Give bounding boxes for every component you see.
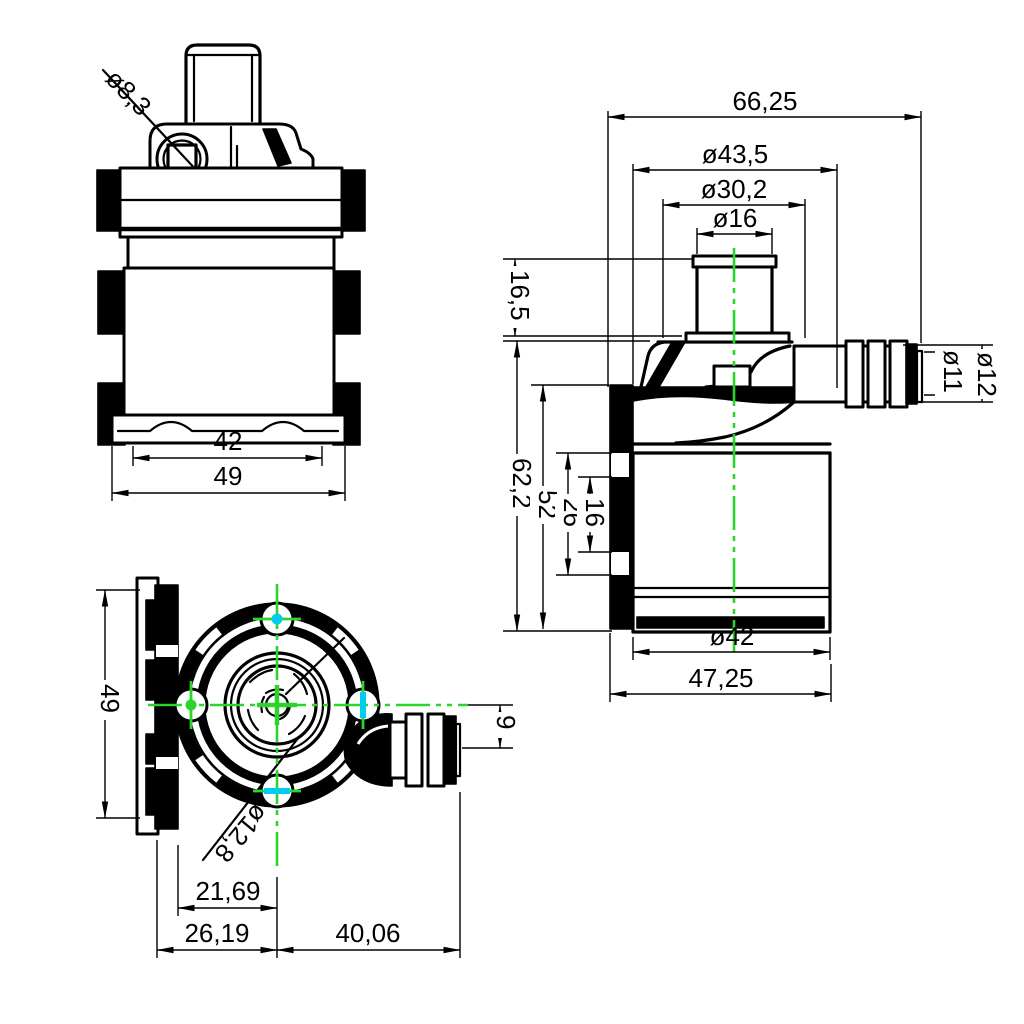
- top-boss-n-accent: [272, 614, 283, 625]
- front-neck: [128, 237, 334, 268]
- top-flange-tab-1: [146, 600, 157, 650]
- side-dim-head-label: ø43,5: [702, 139, 769, 169]
- technical-drawing: ø8,3 42 49: [0, 0, 1024, 1024]
- top-flange-gap-1: [156, 645, 178, 657]
- top-flange-tab-4: [146, 768, 157, 815]
- top-outlet-dia-label: ø12,8: [209, 798, 275, 868]
- top-boss-s-accent: [264, 788, 290, 794]
- front-hole-dia-label: ø8,3: [100, 63, 158, 121]
- side-view: 66,25 ø43,5 ø30,2 ø16 16,5: [502, 86, 1002, 702]
- top-dim-flange-height: 49: [92, 590, 140, 818]
- top-dim-flange-height-label: 49: [95, 684, 125, 713]
- top-view: 49 9 ø12,8 21,69 26,19 40: [92, 578, 521, 958]
- side-inlet-flange: [686, 333, 789, 342]
- drawing-canvas: ø8,3 42 49: [0, 0, 1024, 1024]
- side-head-band: [633, 387, 813, 403]
- front-motor-tab-left-top: [98, 271, 125, 334]
- top-dim-40: 40,06: [277, 792, 460, 958]
- front-motor-body: [124, 268, 334, 415]
- side-barb-ridge-1: [846, 341, 863, 407]
- side-dim-motor-label: ø42: [710, 621, 755, 651]
- front-view: ø8,3 42 49: [97, 45, 365, 501]
- front-dim-42-label: 42: [214, 426, 243, 456]
- side-barb-ridge-2: [868, 341, 885, 407]
- side-dim-neck-label: ø30,2: [701, 174, 768, 204]
- side-dim-body-width-label: 47,25: [688, 663, 753, 693]
- top-dim-40-label: 40,06: [335, 918, 400, 948]
- top-flange-tab-3: [146, 734, 157, 764]
- side-dim-barb-inner: ø11: [924, 347, 968, 399]
- top-dim-26-label: 26,19: [184, 918, 249, 948]
- front-inlet-port: [186, 45, 260, 122]
- front-head-tab-left: [97, 170, 121, 231]
- side-dim-inlet-dia: ø16: [697, 203, 772, 254]
- top-barb-ridge-1: [406, 714, 422, 786]
- top-flange-tab-2: [146, 660, 157, 700]
- side-dim-slot-inner-label: 16: [580, 498, 610, 527]
- front-dim-49-label: 49: [214, 461, 243, 491]
- side-barb-collar: [906, 344, 917, 404]
- top-flange-gap-2: [156, 757, 178, 769]
- front-head-tab-right: [341, 170, 365, 231]
- side-volute-boss: [714, 366, 750, 387]
- side-dim-barb-outer-label: ø12: [972, 352, 1002, 397]
- top-boss-e-accent: [360, 692, 366, 718]
- side-dim-inlet-label: ø16: [713, 203, 758, 233]
- side-motor-body: [633, 453, 830, 632]
- top-dim-outlet-offset: 9: [462, 705, 521, 748]
- top-boss-w-accent: [186, 700, 197, 711]
- top-barb-ridge-2: [428, 714, 444, 786]
- front-head-band: [120, 168, 342, 237]
- side-barb-tip: [917, 351, 922, 402]
- side-dim-inlet-height-label: 16,5: [505, 270, 535, 321]
- front-motor-tab-right-top: [333, 271, 360, 334]
- top-barb-collar: [444, 716, 456, 784]
- top-dim-21-label: 21,69: [195, 876, 260, 906]
- side-dim-overall-label: 66,25: [732, 86, 797, 116]
- top-barb-tip: [456, 724, 460, 776]
- side-flange-slot-bottom: [611, 552, 629, 575]
- side-dim-barb-inner-label: ø11: [938, 350, 968, 393]
- side-barb-ridge-3: [890, 341, 907, 407]
- side-flange-plate: [610, 385, 633, 629]
- top-dim-outlet-offset-label: 9: [491, 715, 521, 729]
- side-flange-slot-top: [611, 453, 629, 477]
- side-dim-slot-inner: 16: [577, 477, 612, 552]
